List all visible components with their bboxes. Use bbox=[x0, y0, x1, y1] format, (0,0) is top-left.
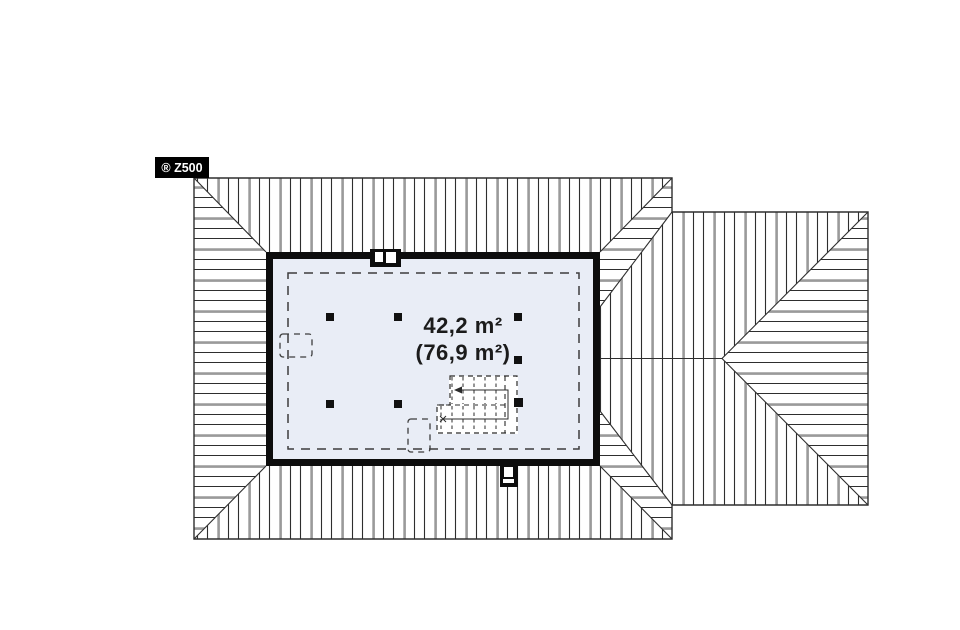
staircase bbox=[437, 376, 518, 434]
support-post bbox=[514, 313, 522, 321]
brand-badge-label: ® Z500 bbox=[161, 161, 202, 175]
roof-plane-south bbox=[194, 466, 672, 539]
chimney-north bbox=[370, 249, 401, 267]
roof-plan-drawing: 42,2 m² (76,9 m²) ® Z500 bbox=[0, 0, 960, 630]
support-post bbox=[514, 356, 522, 364]
support-post bbox=[326, 313, 334, 321]
roof-plan-page: 42,2 m² (76,9 m²) ® Z500 bbox=[0, 0, 960, 630]
chimney-south bbox=[500, 462, 518, 487]
support-post bbox=[394, 313, 402, 321]
area-label-secondary: (76,9 m²) bbox=[416, 340, 511, 365]
brand-badge: ® Z500 bbox=[155, 157, 209, 178]
support-post bbox=[514, 398, 523, 407]
support-post bbox=[326, 400, 334, 408]
support-post bbox=[394, 400, 402, 408]
area-label-primary: 42,2 m² bbox=[423, 313, 502, 338]
roof-plane-north bbox=[194, 178, 672, 252]
